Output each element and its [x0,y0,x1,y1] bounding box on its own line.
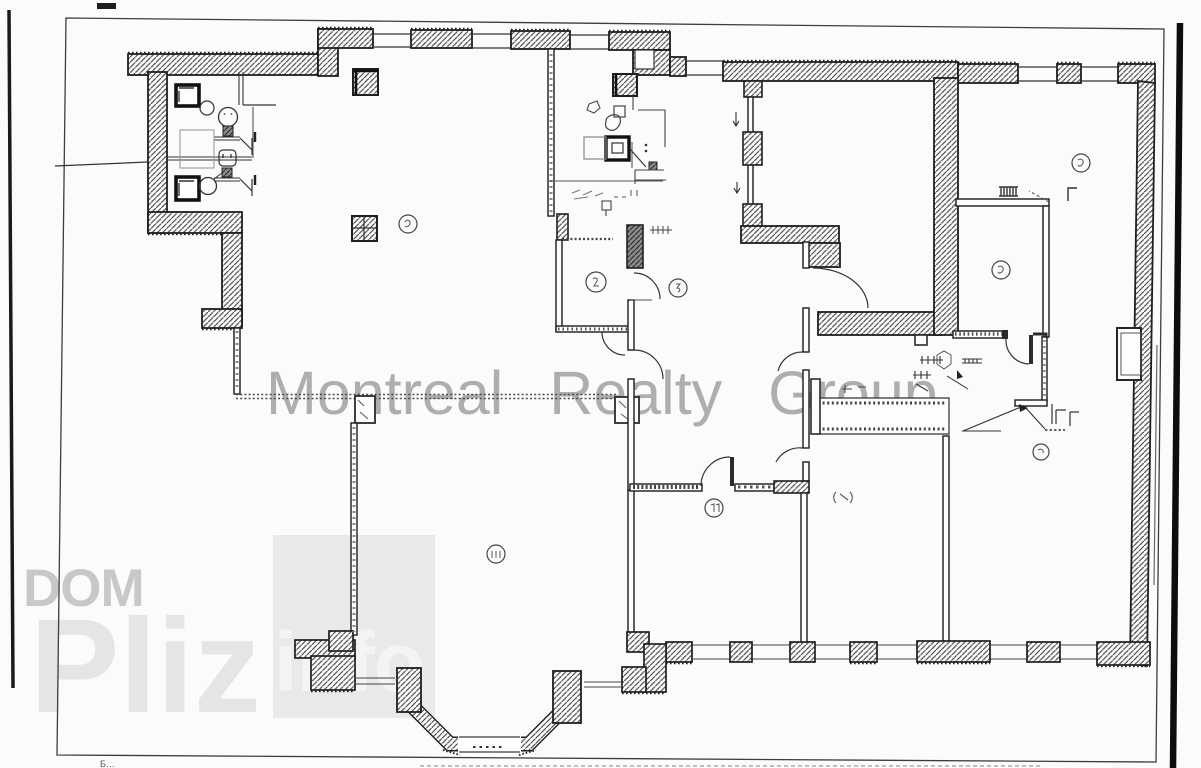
svg-text:Pliz: Pliz [30,592,261,741]
svg-text:Б…: Б… [100,759,115,768]
